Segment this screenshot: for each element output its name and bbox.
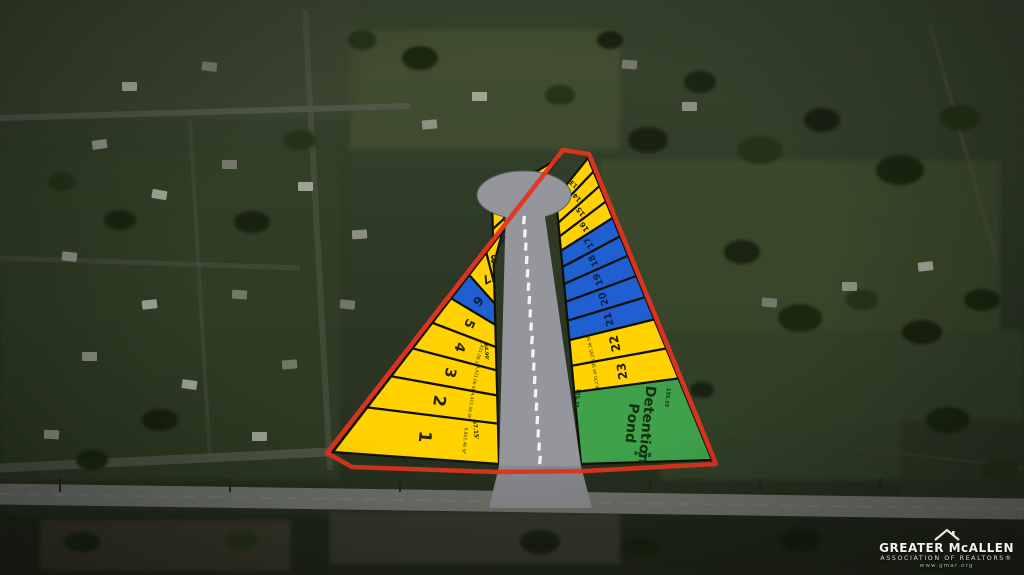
tree-blob [622, 536, 658, 556]
house-roof [44, 430, 59, 440]
centerline-dash [529, 322, 533, 331]
aerial-plat-photo: 1211109876544,421.06 SF34,421.06 SF24,42… [0, 0, 1024, 575]
tree-blob [234, 211, 270, 233]
tree-blob [226, 531, 258, 549]
house-roof [842, 282, 857, 291]
house-roof [82, 352, 97, 361]
tree-blob [284, 130, 316, 150]
logo-url: www.gmar.org [879, 563, 1014, 569]
centerline-dash [525, 256, 529, 265]
tree-blob [348, 30, 376, 50]
house-roof [762, 297, 778, 307]
roof-icon [932, 528, 962, 541]
centerline-dash [523, 229, 527, 238]
centerline-dash [530, 336, 534, 345]
centerline-dash [524, 242, 528, 251]
centerline-dash [528, 309, 532, 318]
logo-subtitle: ASSOCIATION OF REALTORS® [879, 555, 1014, 562]
tree-blob [684, 71, 716, 93]
tree-blob [846, 290, 878, 310]
centerline-dash [534, 402, 538, 411]
centerline-dash [522, 216, 526, 225]
house-roof [252, 432, 267, 441]
house-roof [682, 102, 697, 111]
house-roof [282, 359, 298, 369]
house-roof [222, 160, 237, 169]
tree-blob [104, 210, 136, 230]
house-roof [352, 229, 368, 239]
house-roof [298, 182, 313, 191]
centerline-dash [537, 442, 541, 451]
tree-blob [876, 155, 924, 185]
tree-blob [64, 532, 100, 552]
centerline-dash [535, 416, 539, 425]
tree-blob [142, 409, 178, 431]
lot-number-23: 23 [614, 362, 630, 381]
house-roof [232, 290, 248, 300]
house-roof [622, 60, 638, 70]
centerline-dash [526, 269, 530, 278]
house-roof [142, 299, 158, 310]
logo-name: GREATER McALLEN [879, 542, 1014, 556]
centerline-dash [534, 389, 538, 398]
tree-blob [902, 320, 942, 344]
tree-blob [982, 459, 1018, 481]
centerline-dash [527, 296, 531, 305]
centerline-dash [533, 376, 537, 385]
tree-blob [402, 46, 438, 70]
house-roof [62, 251, 78, 262]
centerline-dash [531, 349, 535, 358]
tree-blob [597, 31, 623, 49]
tree-blob [76, 450, 108, 470]
tree-blob [48, 173, 76, 191]
house-roof [918, 261, 934, 272]
tree-blob [964, 289, 1000, 311]
centerline-dash [532, 362, 536, 371]
house-roof [422, 119, 438, 129]
tree-blob [926, 407, 970, 433]
tree-blob [628, 127, 668, 153]
house-roof [122, 82, 137, 91]
tree-blob [940, 105, 980, 131]
tree-blob [738, 136, 782, 164]
tree-blob [780, 528, 820, 552]
tree-blob [778, 304, 822, 332]
tree-blob [545, 85, 575, 105]
tree-blob [690, 382, 714, 398]
house-roof [202, 61, 218, 72]
centerline-dash [526, 282, 530, 291]
house-roof [340, 299, 356, 310]
tree-blob [520, 530, 560, 554]
house-roof [472, 92, 487, 101]
aerial-scene: 1211109876544,421.06 SF34,421.06 SF24,42… [0, 0, 1024, 575]
lot-number-1: 1 [414, 430, 435, 444]
tree-blob [724, 240, 760, 264]
realtor-logo: GREATER McALLEN ASSOCIATION OF REALTORS®… [879, 528, 1014, 569]
centerline-dash [538, 456, 542, 465]
centerline-dash [536, 429, 540, 438]
tree-blob [804, 108, 840, 132]
lot-number-8: 8 [490, 252, 498, 265]
